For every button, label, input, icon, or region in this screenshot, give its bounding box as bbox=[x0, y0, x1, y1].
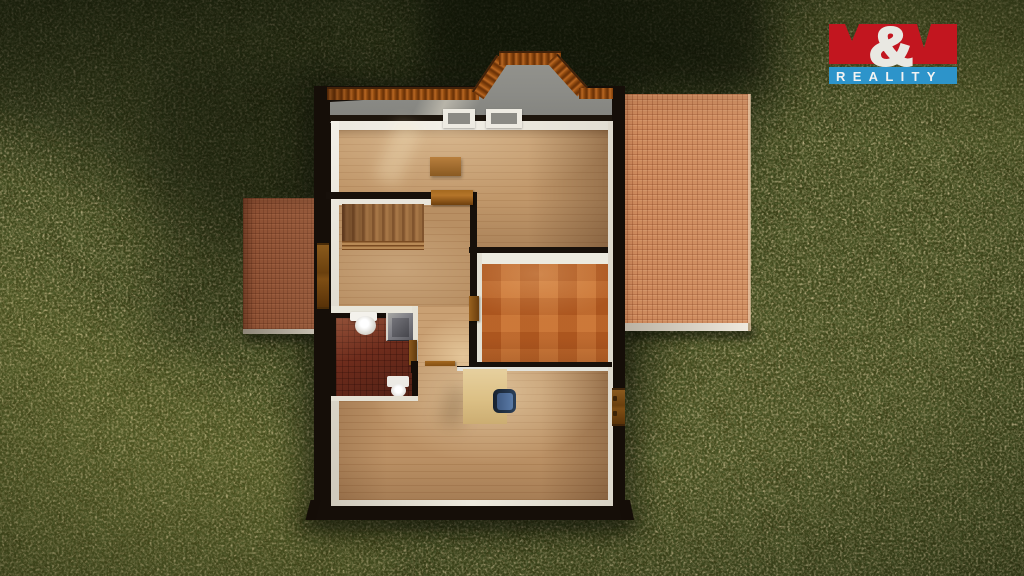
svg-text:REALITY: REALITY bbox=[836, 69, 943, 84]
